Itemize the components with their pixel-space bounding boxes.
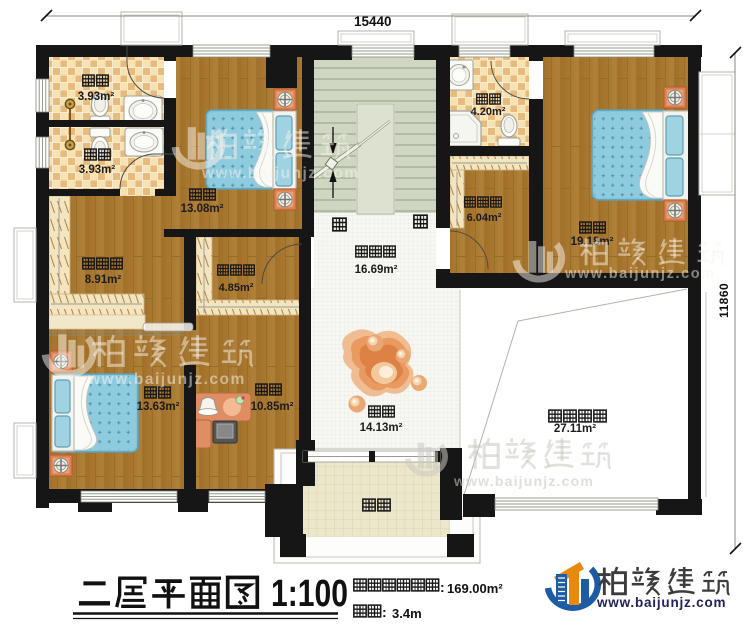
svg-text:169.00m²: 169.00m² [447,581,503,596]
svg-text:13.63m²: 13.63m² [137,401,180,413]
svg-text:13.08m²: 13.08m² [181,203,224,215]
svg-text::: : [440,579,445,595]
svg-text:6.04m²: 6.04m² [467,212,502,224]
svg-text:3.4m: 3.4m [392,606,422,621]
svg-text:4.20m²: 4.20m² [471,106,506,118]
svg-text:www.baijunjz.com: www.baijunjz.com [596,595,726,610]
svg-text:1:100: 1:100 [271,573,348,615]
svg-text:www.baijunjz.com: www.baijunjz.com [201,165,360,182]
svg-text:27.11m²: 27.11m² [554,423,596,435]
svg-text:www.baijunjz.com: www.baijunjz.com [453,473,594,489]
svg-text:10.85m²: 10.85m² [251,401,294,413]
svg-text:11860: 11860 [717,283,731,318]
svg-text:3.93m²: 3.93m² [79,164,116,176]
svg-text:14.13m²: 14.13m² [360,422,403,434]
svg-text:8.91m²: 8.91m² [85,274,122,286]
svg-text:www.baijunjz.com: www.baijunjz.com [87,371,246,388]
svg-text:16.69m²: 16.69m² [355,264,398,276]
svg-text:15440: 15440 [354,14,392,29]
svg-text:4.85m²: 4.85m² [219,282,254,294]
svg-text:3.93m²: 3.93m² [78,91,115,103]
svg-text::: : [382,604,387,620]
svg-text:www.baijunjz.com: www.baijunjz.com [564,266,716,282]
